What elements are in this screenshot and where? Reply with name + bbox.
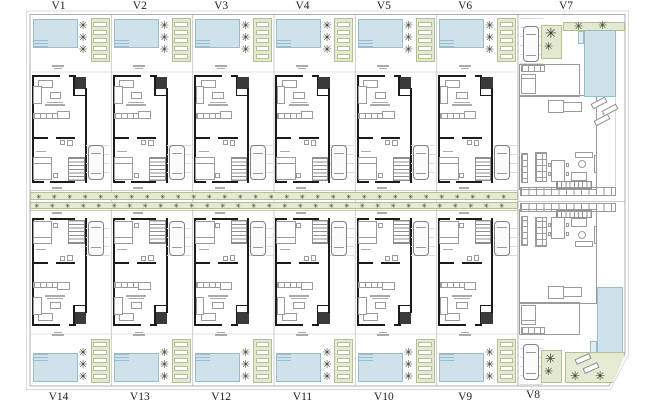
bed-pillow-line: [522, 320, 536, 321]
wardrobe: [521, 153, 528, 183]
dining-table: [551, 217, 565, 239]
street-tree-icon: ✳: [112, 203, 117, 210]
street-tree-icon: ✳: [362, 194, 367, 201]
street-tree-icon: ✳: [455, 194, 460, 201]
street-tree-icon: ✳: [176, 194, 181, 201]
kitchen-island: [535, 217, 547, 247]
chair: [548, 232, 551, 236]
chair: [566, 232, 569, 236]
terrace-deck: [520, 187, 616, 196]
street-tree-icon: ✳: [145, 194, 150, 201]
street-tree-icon: ✳: [127, 203, 132, 210]
street-tree-icon: ✳: [191, 194, 196, 201]
sofa: [571, 218, 587, 227]
street-tree-icon: ✳: [52, 194, 57, 201]
palm-tree-icon: ✳: [544, 41, 553, 52]
chair: [548, 172, 551, 176]
street-tree-icon: ✳: [83, 194, 88, 201]
street-tree-icon: ✳: [160, 194, 165, 201]
street-tree-icon: ✳: [253, 194, 258, 201]
closet-row: [521, 65, 545, 72]
street-tree-icon: ✳: [36, 194, 41, 201]
street-tree-icon: ✳: [391, 203, 396, 210]
pool: [584, 30, 616, 97]
street-tree-icon: ✳: [329, 203, 334, 210]
street-tree-icon: ✳: [284, 194, 289, 201]
bed: [548, 100, 564, 113]
street-tree-icon: ✳: [129, 194, 134, 201]
street-tree-icon: ✳: [236, 203, 241, 210]
sofa: [571, 172, 587, 181]
street-tree-icon: ✳: [207, 194, 212, 201]
car-icon: [523, 26, 539, 62]
desk-chair: [578, 160, 586, 168]
street-tree-icon: ✳: [422, 203, 427, 210]
street-tree-icon: ✳: [65, 203, 70, 210]
street-tree-icon: ✳: [344, 203, 349, 210]
bed-pillow-line: [522, 78, 536, 79]
bed: [521, 74, 536, 94]
palm-tree-icon: ✳: [545, 27, 557, 41]
street-tree-icon: ✳: [251, 203, 256, 210]
street-tree-icon: ✳: [222, 194, 227, 201]
street-tree-icon: ✳: [375, 203, 380, 210]
street-tree-icon: ✳: [282, 203, 287, 210]
street-tree-icon: ✳: [96, 203, 101, 210]
street-tree-icon: ✳: [189, 203, 194, 210]
street-tree-icon: ✳: [439, 194, 444, 201]
site-plan: V1✳✳✳✳✳✳V14V2✳✳✳✳✳✳V13V3✳✳✳✳✳✳V12V4✳✳✳✳✳…: [0, 0, 660, 410]
villa-label: V8: [508, 389, 558, 402]
desk-chair: [578, 231, 586, 239]
desk: [575, 241, 593, 247]
street-tree-icon: ✳: [470, 194, 475, 201]
street-tree-icon: ✳: [220, 203, 225, 210]
pool: [597, 287, 623, 355]
street-tree-icon: ✳: [437, 203, 442, 210]
street-tree-icon: ✳: [424, 194, 429, 201]
street-tree-icon: ✳: [484, 203, 489, 210]
street-tree-icon: ✳: [98, 194, 103, 201]
street-tree-icon: ✳: [205, 203, 210, 210]
street-tree-icon: ✳: [331, 194, 336, 201]
street-tree-icon: ✳: [50, 203, 55, 210]
street-tree-icon: ✳: [408, 194, 413, 201]
desk: [575, 152, 593, 158]
street-tree-icon: ✳: [267, 203, 272, 210]
palm-tree-icon: ✳: [544, 366, 553, 377]
street-tree-icon: ✳: [158, 203, 163, 210]
tv-unit: [594, 226, 597, 244]
street-tree-icon: ✳: [501, 194, 506, 201]
palm-tree-icon: ✳: [595, 370, 605, 382]
dining-table: [551, 160, 565, 182]
bed: [548, 286, 564, 299]
palm-tree-icon: ✳: [570, 370, 580, 382]
chair: [566, 163, 569, 167]
street-tree-icon: ✳: [34, 203, 39, 210]
wardrobe: [521, 216, 528, 246]
street-tree-icon: ✳: [468, 203, 473, 210]
street-tree-icon: ✳: [238, 194, 243, 201]
street-tree-icon: ✳: [143, 203, 148, 210]
street-tree-icon: ✳: [486, 194, 491, 201]
tv-unit: [594, 155, 597, 173]
street-tree-icon: ✳: [453, 203, 458, 210]
street-tree-icon: ✳: [298, 203, 303, 210]
street-tree-icon: ✳: [360, 203, 365, 210]
street-tree-icon: ✳: [346, 194, 351, 201]
bed: [521, 305, 536, 325]
kitchen-island: [535, 152, 547, 182]
pool-steps: [578, 31, 584, 44]
chair: [548, 223, 551, 227]
street-tree-icon: ✳: [174, 203, 179, 210]
car-icon: [523, 344, 539, 380]
street-tree-icon: ✳: [81, 203, 86, 210]
street-tree-icon: ✳: [499, 203, 504, 210]
chair: [566, 172, 569, 176]
street-tree-icon: ✳: [377, 194, 382, 201]
street-tree-icon: ✳: [315, 194, 320, 201]
villa-label: V7: [518, 0, 614, 13]
street-tree-icon: ✳: [67, 194, 72, 201]
street-tree-icon: ✳: [114, 194, 119, 201]
chair: [566, 223, 569, 227]
street-tree-icon: ✳: [313, 203, 318, 210]
street-tree-icon: ✳: [300, 194, 305, 201]
terrace-deck: [520, 203, 616, 212]
street-tree-icon: ✳: [269, 194, 274, 201]
street-tree-icon: ✳: [406, 203, 411, 210]
street-tree-icon: ✳: [393, 194, 398, 201]
chair: [548, 163, 551, 167]
closet-row: [521, 327, 545, 334]
